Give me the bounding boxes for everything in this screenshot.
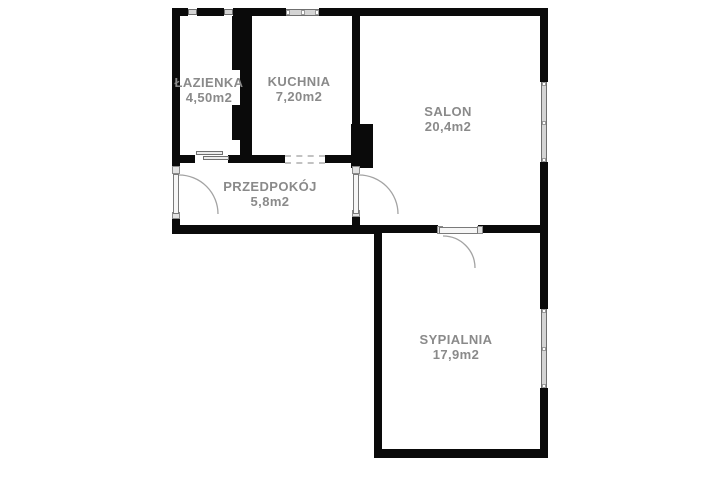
wall-top-bathroom bbox=[197, 8, 224, 16]
window-tick-icon bbox=[315, 10, 319, 15]
kitchen-window-icon bbox=[286, 9, 319, 16]
wall-top-right bbox=[319, 8, 548, 16]
window-tick-icon bbox=[542, 309, 546, 313]
wall-hall-top-left bbox=[178, 155, 195, 163]
wall-right-upper bbox=[540, 8, 548, 82]
wall-bedroom-top-right bbox=[478, 225, 548, 233]
pilaster-bathroom-upper bbox=[232, 16, 240, 70]
room-area: 7,20m2 bbox=[268, 89, 331, 104]
window-tick-icon bbox=[542, 158, 546, 162]
wall-hall-bottom bbox=[172, 225, 382, 234]
bedroom-window-icon bbox=[541, 309, 547, 388]
wall-hall-top-mid bbox=[228, 155, 285, 163]
wall-right-mid bbox=[540, 162, 548, 309]
room-label-przedpokoj: PRZEDPOKÓJ 5,8m2 bbox=[223, 179, 317, 209]
wall-block-corner bbox=[351, 124, 373, 168]
bathroom-sliding-door-icon bbox=[203, 156, 229, 160]
bathroom-window-right-icon bbox=[224, 9, 233, 15]
room-label-lazienka: ŁAZIENKA 4,50m2 bbox=[175, 75, 244, 105]
room-area: 5,8m2 bbox=[223, 194, 317, 209]
room-label-sypialnia: SYPIALNIA 17,9m2 bbox=[420, 332, 493, 362]
room-name: PRZEDPOKÓJ bbox=[223, 179, 317, 194]
bathroom-window-left-icon bbox=[188, 9, 197, 15]
room-label-salon: SALON 20,4m2 bbox=[424, 104, 472, 134]
room-name: SYPIALNIA bbox=[420, 332, 493, 347]
entrance-door-leaf bbox=[173, 174, 179, 214]
salon-door-jamb bbox=[352, 166, 360, 174]
salon-door-arc bbox=[359, 175, 398, 214]
salon-window-icon bbox=[541, 82, 547, 162]
room-name: KUCHNIA bbox=[268, 74, 331, 89]
wall-top-mid bbox=[233, 8, 286, 16]
entrance-door-jamb bbox=[172, 166, 180, 174]
room-area: 17,9m2 bbox=[420, 347, 493, 362]
window-tick-icon bbox=[301, 10, 305, 15]
wall-right-lower bbox=[540, 388, 548, 458]
room-label-kuchnia: KUCHNIA 7,20m2 bbox=[268, 74, 331, 104]
wall-kitchen-salon bbox=[352, 16, 360, 124]
window-tick-icon bbox=[542, 82, 546, 86]
window-tick-icon bbox=[542, 121, 546, 125]
pilaster-bathroom-lower bbox=[232, 105, 240, 140]
room-area: 20,4m2 bbox=[424, 119, 472, 134]
wall-bedroom-top-left bbox=[360, 225, 438, 233]
bedroom-door-arc bbox=[443, 236, 475, 268]
bathroom-sliding-door-icon bbox=[196, 151, 223, 155]
room-area: 4,50m2 bbox=[175, 90, 244, 105]
window-tick-icon bbox=[286, 10, 290, 15]
room-name: ŁAZIENKA bbox=[175, 75, 244, 90]
floor-plan: ŁAZIENKA 4,50m2 KUCHNIA 7,20m2 SALON 20,… bbox=[0, 0, 720, 482]
wall-bedroom-bottom bbox=[374, 449, 548, 458]
wall-bedroom-left bbox=[374, 233, 382, 458]
window-tick-icon bbox=[542, 384, 546, 388]
window-tick-icon bbox=[542, 347, 546, 351]
bedroom-door-leaf bbox=[439, 227, 478, 234]
kitchen-opening-dashed bbox=[285, 155, 325, 164]
door-swing-arcs bbox=[0, 0, 720, 482]
room-name: SALON bbox=[424, 104, 472, 119]
salon-door-leaf bbox=[353, 174, 359, 214]
wall-hall-top-right bbox=[325, 155, 352, 163]
entrance-door-arc bbox=[179, 175, 218, 214]
